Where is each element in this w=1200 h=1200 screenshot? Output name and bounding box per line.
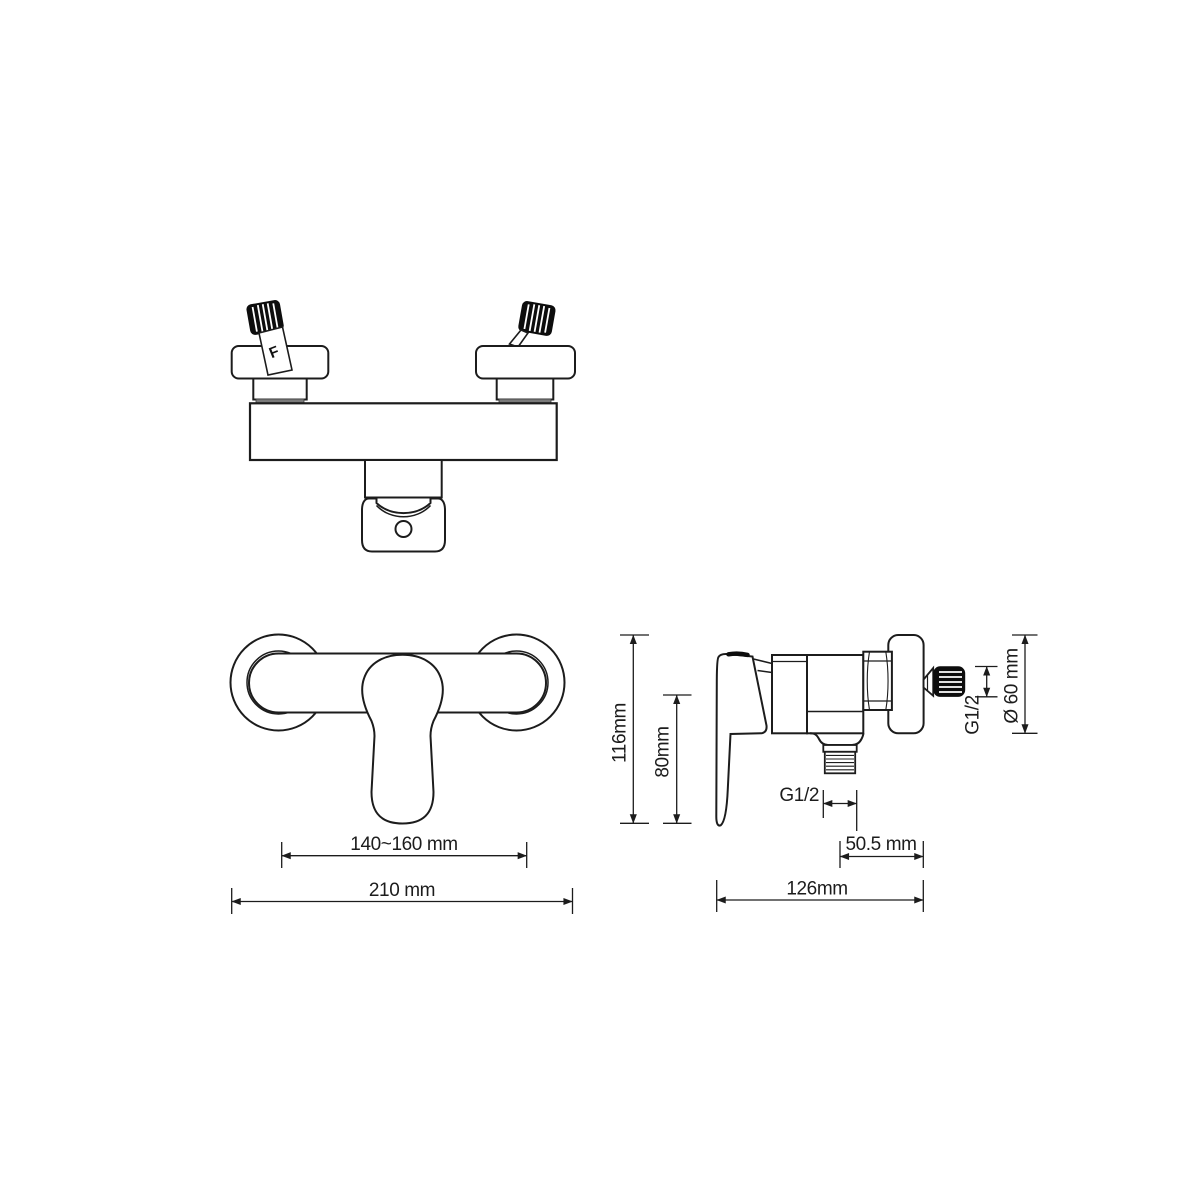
dim-outlet-thread-extension-lines: [823, 790, 856, 831]
flange-side: [888, 635, 923, 733]
lever-handle-side: [716, 654, 766, 826]
dim-outlet-offset-label: 50.5 mm: [845, 834, 916, 855]
shower-mixer-drawing: F 140~160 mm: [0, 0, 1200, 1200]
dim-outlet-offset: 50.5 mm: [840, 834, 923, 868]
outlet-shoulder: [810, 733, 863, 745]
outlet-collar: [823, 745, 856, 752]
lever-handle-front: [362, 655, 443, 824]
mixer-body-plan: [250, 403, 557, 460]
dim-handle-centers: 140~160 mm: [282, 834, 527, 868]
dim-inlet-thread-label: G1/2: [963, 695, 984, 735]
mixer-body-side: [807, 655, 863, 733]
dim-flange-diameter: Ø 60 mm: [1002, 635, 1038, 733]
dim-overall-width: 210 mm: [232, 880, 573, 914]
flange-right-plan: [476, 346, 575, 379]
cartridge-housing: [772, 655, 807, 733]
inlet-cone: [924, 668, 934, 696]
side-view: 116mm 80mm G1/2 50.5 mm 126mm: [610, 635, 1038, 912]
dim-overall-depth: 126mm: [717, 879, 924, 913]
dim-lever-height: 80mm: [653, 695, 692, 823]
dim-overall-height: 116mm: [610, 635, 649, 823]
dim-outlet-thread: G1/2: [779, 785, 856, 831]
dim-outlet-thread-label: G1/2: [779, 785, 819, 806]
connector-nut-right: [497, 379, 554, 400]
dim-overall-height-label: 116mm: [610, 703, 631, 763]
dim-overall-depth-label: 126mm: [786, 879, 847, 900]
technical-drawing-page: F 140~160 mm: [0, 0, 1200, 1200]
dim-lever-height-label: 80mm: [653, 726, 674, 777]
lever-handle-cap: [729, 654, 748, 655]
lever-head-dot: [396, 521, 412, 537]
dim-handle-centers-label: 140~160 mm: [350, 834, 457, 855]
front-view: 140~160 mm 210 mm: [231, 635, 573, 915]
top-view: F: [232, 299, 575, 551]
outlet-neck-plan: [365, 460, 442, 498]
knob-right-stem: [510, 330, 529, 347]
connector-nut-left: [253, 379, 306, 400]
dim-overall-width-label: 210 mm: [369, 880, 435, 901]
dim-inlet-thread: G1/2: [963, 667, 998, 735]
dim-flange-diameter-label: Ø 60 mm: [1002, 648, 1023, 723]
